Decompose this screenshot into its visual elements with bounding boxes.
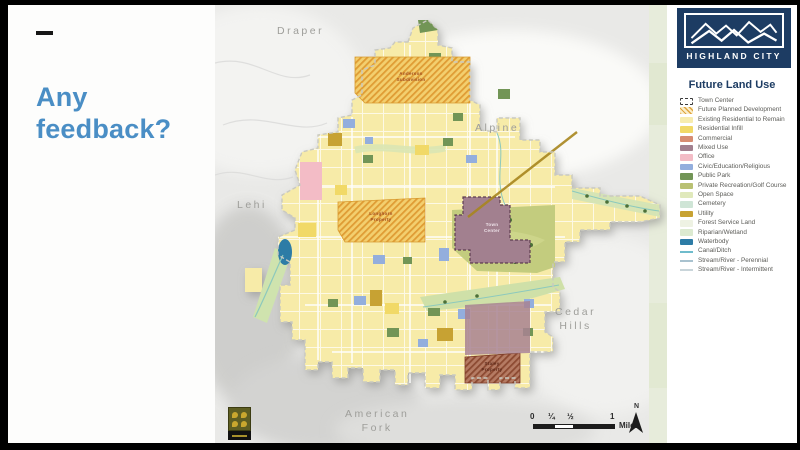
map-label-alpine: Alpine <box>475 122 519 136</box>
legend-label: Riparian/Wetland <box>698 230 747 236</box>
area-label-anderson: Anderson Subdivision <box>385 71 437 82</box>
legend-item-canal-ditch: Canal/Ditch <box>680 248 792 255</box>
legend-label: Town Center <box>698 98 734 104</box>
legend-label: Utility <box>698 211 714 217</box>
legend-label: Public Park <box>698 173 730 179</box>
legend-item-utility: Utility <box>680 211 792 218</box>
legend-item-riparian-wetland: Riparian/Wetland <box>680 229 792 236</box>
legend-label: Open Space <box>698 192 734 198</box>
legend-swatch <box>680 201 693 208</box>
legend-item-office: Office <box>680 154 792 161</box>
scale-tick-1: 1 <box>610 412 614 421</box>
map-label-draper: Draper <box>277 25 324 39</box>
legend-item-waterbody: Waterbody <box>680 239 792 246</box>
legend-swatch <box>680 145 693 152</box>
legend-swatch <box>680 154 693 161</box>
legend-swatch <box>680 220 693 227</box>
legend-item-mixed-use: Mixed Use <box>680 145 792 152</box>
legend-label: Residential Infill <box>698 126 743 132</box>
legend-item-future-planned-development: Future Planned Development <box>680 107 792 114</box>
legend-label: Private Recreation/Golf Course <box>698 183 786 189</box>
legend-swatch <box>680 107 693 114</box>
legend-title: Future Land Use <box>667 79 797 91</box>
legend-swatch <box>680 164 693 171</box>
map-label-american: American Fork <box>345 408 409 435</box>
map-canvas <box>215 5 667 443</box>
stamp-emblem-icon <box>228 407 251 431</box>
legend-label: Forest Service Land <box>698 220 755 226</box>
map-stamp-logo <box>228 407 251 441</box>
legend-panel: HIGHLAND CITY Future Land Use Town Cente… <box>667 5 797 443</box>
legend-item-open-space: Open Space <box>680 192 792 199</box>
legend-item-residential-infill: Residential Infill <box>680 126 792 133</box>
legend-swatch <box>680 239 693 246</box>
scale-bar <box>533 424 615 429</box>
highland-city-logo: HIGHLAND CITY <box>677 8 791 68</box>
legend-label: Mixed Use <box>698 145 728 151</box>
scale-tick-half: ½ <box>567 412 574 421</box>
area-label-staley: Staley Property <box>466 361 518 372</box>
slide-heading: Anyfeedback? <box>36 81 171 146</box>
slide-heading-line2: feedback? <box>36 114 171 144</box>
legend-item-existing-residential-to-remain: Existing Residential to Remain <box>680 117 792 124</box>
legend-label: Stream/River - Perennial <box>698 258 768 264</box>
legend-swatch <box>680 211 693 218</box>
legend-item-town-center: Town Center <box>680 98 792 105</box>
slide-accent-dash: — <box>36 31 53 35</box>
legend-label: Stream/River - Intermittent <box>698 267 773 273</box>
legend-item-public-park: Public Park <box>680 173 792 180</box>
land-use-map: 0 ¼ ½ 1 Miles N DraperAlpineLehiCedar Hi… <box>215 5 667 443</box>
slide-heading-line1: Any <box>36 82 88 112</box>
legend-label: Commercial <box>698 136 732 142</box>
legend-label: Civic/Education/Religious <box>698 164 770 170</box>
map-label-cedar: Cedar Hills <box>555 306 596 333</box>
legend-label: Office <box>698 154 715 160</box>
mountains-icon <box>684 13 784 48</box>
legend-swatch <box>680 229 693 236</box>
legend-swatch <box>680 269 693 271</box>
map-label-lehi: Lehi <box>237 199 267 213</box>
legend-item-stream-river-perennial: Stream/River - Perennial <box>680 258 792 265</box>
legend-swatch <box>680 173 693 180</box>
legend-label: Future Planned Development <box>698 107 781 113</box>
area-label-longhorn: Longhorn Property <box>355 211 407 222</box>
stamp-caption-band <box>228 431 251 440</box>
legend-label: Existing Residential to Remain <box>698 117 785 123</box>
area-label-town: Town Center <box>466 222 518 233</box>
legend-swatch <box>680 183 693 190</box>
legend-label: Cemetery <box>698 201 726 207</box>
legend-item-forest-service-land: Forest Service Land <box>680 220 792 227</box>
legend-item-private-recreation-golf-course: Private Recreation/Golf Course <box>680 183 792 190</box>
legend-swatch <box>680 117 693 124</box>
north-label: N <box>634 403 639 410</box>
left-text-panel: — Anyfeedback? <box>8 5 215 443</box>
legend-label: Waterbody <box>698 239 729 245</box>
legend-swatch <box>680 136 693 143</box>
legend-item-commercial: Commercial <box>680 136 792 143</box>
legend-swatch <box>680 251 693 253</box>
legend-item-cemetery: Cemetery <box>680 201 792 208</box>
scale-tick-quarter: ¼ <box>548 412 555 421</box>
legend-item-civic-education-religious: Civic/Education/Religious <box>680 164 792 171</box>
presentation-slide: — Anyfeedback? <box>8 5 797 443</box>
logo-title: HIGHLAND CITY <box>686 51 781 61</box>
legend-items: Town CenterFuture Planned DevelopmentExi… <box>680 98 792 274</box>
legend-item-stream-river-intermittent: Stream/River - Intermittent <box>680 267 792 274</box>
legend-swatch <box>680 260 693 262</box>
legend-swatch <box>680 98 693 105</box>
legend-label: Canal/Ditch <box>698 248 731 254</box>
scale-tick-0: 0 <box>530 412 534 421</box>
legend-swatch <box>680 126 693 133</box>
legend-swatch <box>680 192 693 199</box>
